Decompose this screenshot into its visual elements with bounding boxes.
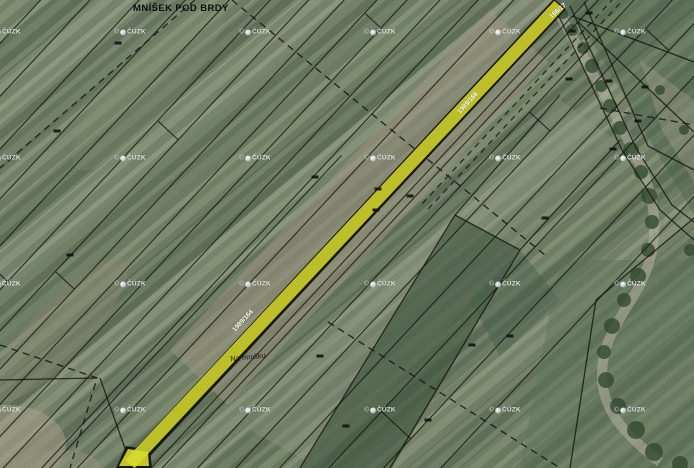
cadastral-map-viewport[interactable]: ©ČÚZK©ČÚZK©ČÚZK©ČÚZK©ČÚZK©ČÚZK©ČÚZK©ČÚZK… bbox=[0, 0, 694, 468]
aerial-photo-background bbox=[0, 0, 694, 468]
municipality-label: MNÍŠEK POD BRDY bbox=[133, 3, 229, 14]
